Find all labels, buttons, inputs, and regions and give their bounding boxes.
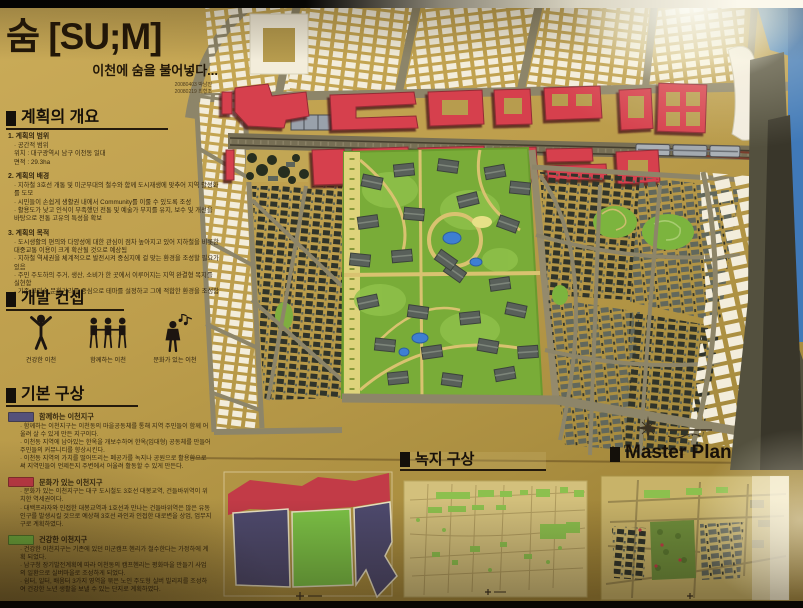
zone-line: · 이천동 지역의 가치를 떨어뜨리는 폐공가를 녹지나 공원으로 활용함으로써… [20,455,212,471]
square-bullet-icon [6,111,16,126]
heading-plan-overview: 계획의 개요 [6,110,168,130]
heading-master-plan: Master Plan [610,443,786,464]
zone-concept-diagram [224,472,397,600]
board-header: 숨 [SU;M] 이천에 숨을 불어넣다... 20080403 박남진 200… [6,18,222,96]
square-bullet-icon [6,388,16,403]
square-bullet-icon [6,292,16,307]
subtitle: 이천에 숨을 불어넣다... [6,60,222,79]
person-with-music-icon [156,314,194,352]
overview-line: · 주민 주도하의 주거, 생산, 소비가 한 곳에서 이루어지는 지역 완결형… [8,272,220,289]
overview-line: · 활용도가 낮고 인식이 부족했던 전통 및 예술가 부지를 유지, 보수 및… [8,207,220,224]
zone-line: · 문화가 있는 이천지구는 대구 도시철도 3호선 대봉교역, 건들바위역이 … [20,488,212,504]
zone-line: · 남구청 장기발전계획에 따라 이천동의 캠프헨리는 평화마을 만들기 사업의… [20,562,212,578]
zone-healthy: 건강한 이천지구 · 건강한 이천지구는 기존에 있던 미군캠프 헨리가 철수한… [8,535,212,594]
square-bullet-icon [610,447,620,462]
concept-label: 문화가 있는 이천 [153,355,196,364]
overview-item: 1. 계획의 범위 · 공간적 범위 위치 : 대구광역시 남구 이천동 일대 … [8,132,220,167]
square-bullet-icon [400,452,410,467]
concept-item: 문화가 있는 이천 [142,314,208,364]
zone-line: · 대백프라자와 인접한 대봉교역과 1호선과 만나는 건들바위역은 많은 유동… [20,505,212,529]
zone-line: · 건강한 이천지구는 기존에 있던 미군캠프 헨리가 철수한다는 가정하에 계… [20,546,212,562]
zone-color-swatch [8,412,34,422]
zone-title: 문화가 있는 이천지구 [39,478,103,487]
overview-line: 면적 : 29.3ha [8,159,220,167]
basic-plan-zones: 함께하는 이천지구 · 함께하는 이천지구는 이천동의 마을공동체를 통해 지역… [8,412,212,600]
heading-development-concept: 개발 컨셉 [6,291,124,311]
person-arms-raised-icon [23,314,59,352]
overview-line: · 시민들이 손쉽게 생활권 내에서 Community를 이룰 수 있도록 조… [8,199,220,207]
zone-together: 함께하는 이천지구 · 함께하는 이천지구는 이천동의 마을공동체를 통해 지역… [8,412,212,471]
concept-item: 건강한 이천 [8,314,74,364]
green-plan-map [404,481,587,597]
presentation-board: 숨 [SU;M] 이천에 숨을 불어넣다... 20080403 박남진 200… [0,0,803,608]
zone-line: · 함께하는 이천지구는 이천동의 마을공동체를 통해 지역 주민들이 함께 어… [20,423,212,439]
zone-title: 함께하는 이천지구 [39,412,94,421]
heading-green-plan: 녹지 구상 [400,452,546,471]
silver-village-park [342,148,542,398]
concept-figures: 건강한 이천 함께하는 이천 [8,314,208,364]
people-holding-hands-icon [85,314,131,352]
overview-line: · 지하철 3호선 개통 및 미군부대의 철수와 함께 도시재생에 맞추어 지역… [8,182,220,199]
credits: 20080403 박남진 20080219 최형조 [6,82,222,96]
photo-of-presentation-board: 숨 [SU;M] 이천에 숨을 불어넣다... 20080403 박남진 200… [0,0,803,608]
overview-line: 위치 : 대구광역시 남구 이천동 일대 [8,150,220,158]
credit-line: 20080219 최형조 [6,89,212,96]
concept-label: 건강한 이천 [26,355,56,364]
overview-line: · 지하철 역세권을 체계적으로 발전시켜 중심지에 걸 맞는 환경을 조성할 … [8,255,220,272]
zone-culture: 문화가 있는 이천지구 · 문화가 있는 이천지구는 대구 도시철도 3호선 대… [8,477,212,528]
overview-body: 1. 계획의 범위 · 공간적 범위 위치 : 대구광역시 남구 이천동 일대 … [8,132,220,302]
overview-line: · 도시생활의 편의와 다양성에 대한 관심이 점차 높아지고 있어 지하철을 … [8,239,220,256]
master-plan-map [601,476,789,600]
concept-item: 함께하는 이천 [75,314,141,364]
page-title: 숨 [SU;M] [6,18,222,55]
concept-label: 함께하는 이천 [90,355,126,364]
zone-title: 건강한 이천지구 [39,535,87,544]
zone-color-swatch [8,477,34,487]
overview-item: 3. 계획의 목적 · 도시생활의 편의와 다양성에 대한 관심이 점차 높아지… [8,229,220,297]
zone-color-swatch [8,535,34,545]
heading-basic-plan: 기본 구상 [6,387,138,407]
credit-line: 20080403 박남진 [6,82,212,89]
zone-line: · 이천동 지역에 남아있는 한옥을 개보수하여 한옥(임대형) 공동체를 만들… [20,439,212,455]
zone-line: · 쉼터, 일터, 배움터 3가지 영역을 묶은 노인 주도형 실버 빌리지를 … [20,578,212,594]
overview-item: 2. 계획의 배경 · 지하철 3호선 개통 및 미군부대의 철수와 함께 도시… [8,172,220,224]
